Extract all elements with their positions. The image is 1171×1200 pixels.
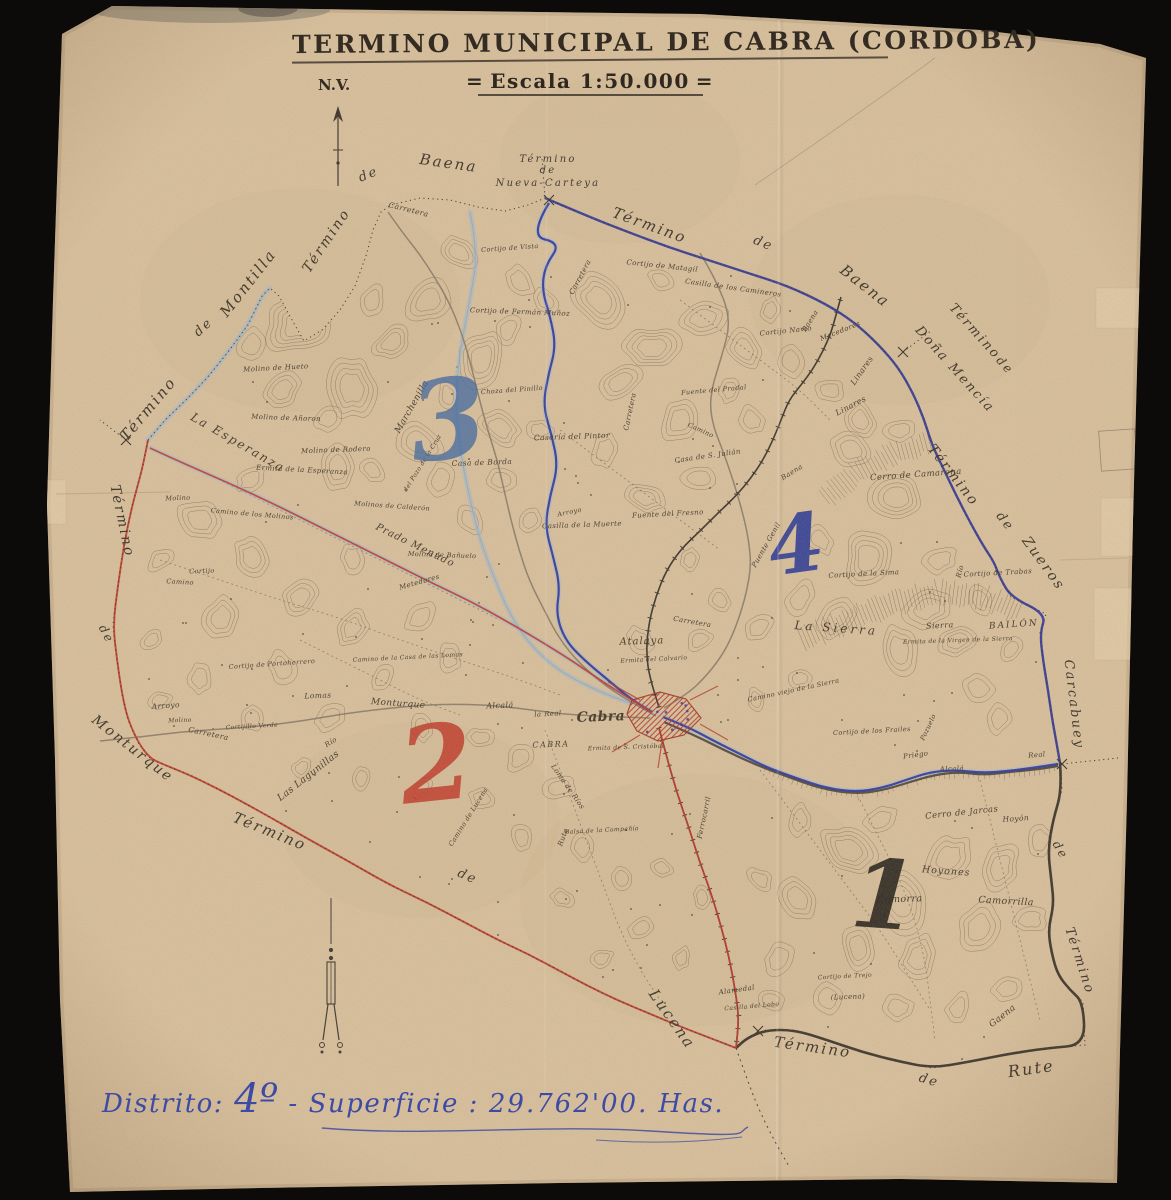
scanned-map-document: TérminodeMontillaTérminodeBaenaTérminode…: [0, 0, 1171, 1200]
district-number: 4º: [234, 1076, 278, 1122]
district-annotation-prefix: Distrito:: [102, 1089, 224, 1119]
surface-value: 29.762'00.: [489, 1089, 648, 1119]
paper-vignette: [0, 0, 1171, 1200]
map-scale: =Escala 1:50.000=: [292, 69, 888, 96]
title-block: TERMINO MUNICIPAL DE CABRA (CORDOBA) =Es…: [292, 28, 888, 96]
map-title: TERMINO MUNICIPAL DE CABRA (CORDOBA): [292, 26, 888, 59]
scale-decor-right: =: [696, 69, 714, 93]
map-canvas: TérminodeMontillaTérminodeBaenaTérminode…: [0, 0, 1171, 1200]
district-annotation-separator: -: [288, 1089, 298, 1119]
surface-unit: Has.: [658, 1089, 724, 1119]
district-annotation: Distrito:4º-Superficie :29.762'00.Has.: [102, 1076, 734, 1122]
scale-decor-left: =: [466, 69, 484, 93]
scale-underline: [478, 94, 703, 96]
north-label: N.V.: [318, 76, 350, 94]
scale-text: Escala 1:50.000: [490, 69, 690, 93]
surface-label: Superficie :: [309, 1089, 479, 1119]
